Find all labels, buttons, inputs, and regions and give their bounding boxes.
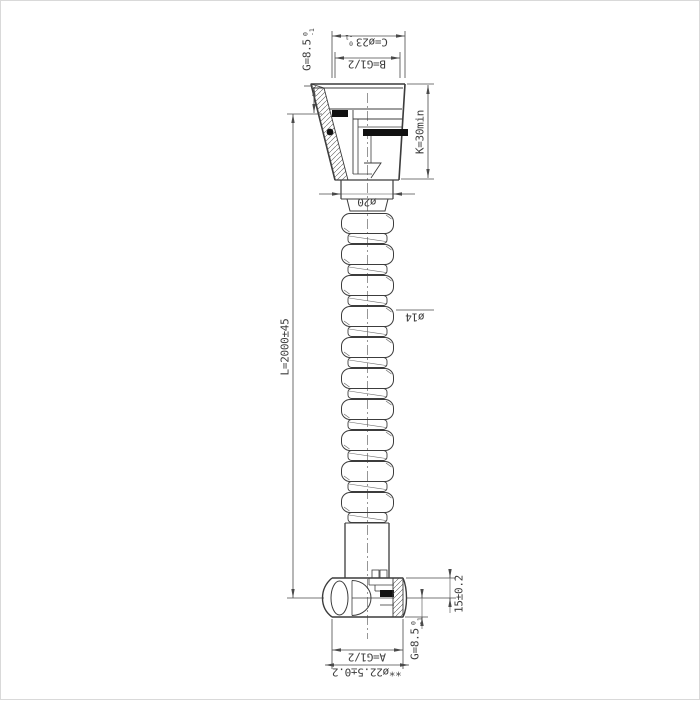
retaining-ring-seal <box>363 129 408 136</box>
dim-seat-label: 15±0.2 <box>453 575 466 613</box>
svg-text:K=30min: K=30min <box>414 110 427 154</box>
svg-text:ø14: ø14 <box>405 311 425 324</box>
dim-od-label: **ø22.5±0.2 <box>332 666 402 679</box>
dim-length-label: L=2000±45 <box>279 319 292 376</box>
nut-opening <box>331 581 348 615</box>
internal-detail <box>364 163 381 178</box>
svg-text:B=G1/2: B=G1/2 <box>348 58 386 71</box>
svg-text:-1: -1 <box>308 28 316 36</box>
sectioned-wall-hatch <box>393 578 403 617</box>
svg-text:C=ø23: C=ø23 <box>356 36 388 49</box>
svg-text:15±0.2: 15±0.2 <box>453 575 466 613</box>
dim-g-top-label: G=8.5 0 -1 <box>301 28 317 71</box>
svg-text:A=G1/2: A=G1/2 <box>348 651 386 664</box>
dim-g-bottom-label: G=8.5 0 -1 <box>409 617 425 660</box>
dim-k-label: K=30min <box>414 110 427 154</box>
drawing-canvas: C=ø23 0 -1 B=G1/2 G=8.5 0 -1 K=30min ø20… <box>0 0 700 700</box>
svg-text:**ø22.5±0.2: **ø22.5±0.2 <box>332 666 402 679</box>
svg-text:ø20: ø20 <box>358 196 377 209</box>
bottom-connector <box>323 523 407 617</box>
dim-c-label: C=ø23 0 -1 <box>345 33 388 49</box>
dimension-length <box>287 114 324 598</box>
svg-text:G=8.5: G=8.5 <box>301 39 314 71</box>
svg-text:L=2000±45: L=2000±45 <box>279 319 292 376</box>
dim-a-label: A=G1/2 <box>348 651 386 664</box>
pivot-dot <box>327 129 334 136</box>
dim-b-label: B=G1/2 <box>348 58 386 71</box>
svg-text:G=8.5: G=8.5 <box>409 628 422 660</box>
bottom-gasket-seal <box>380 590 394 597</box>
svg-text:-1: -1 <box>345 33 353 41</box>
dimension-seat <box>406 570 456 613</box>
svg-text:-1: -1 <box>416 617 424 625</box>
technical-drawing: C=ø23 0 -1 B=G1/2 G=8.5 0 -1 K=30min ø20… <box>1 1 700 701</box>
dim-neck-label: ø20 <box>358 196 377 209</box>
dim-hose-label: ø14 <box>405 311 425 324</box>
top-connector <box>311 84 408 211</box>
top-gasket-seal <box>332 110 348 117</box>
dimension-labels: C=ø23 0 -1 B=G1/2 G=8.5 0 -1 K=30min ø20… <box>279 28 466 678</box>
